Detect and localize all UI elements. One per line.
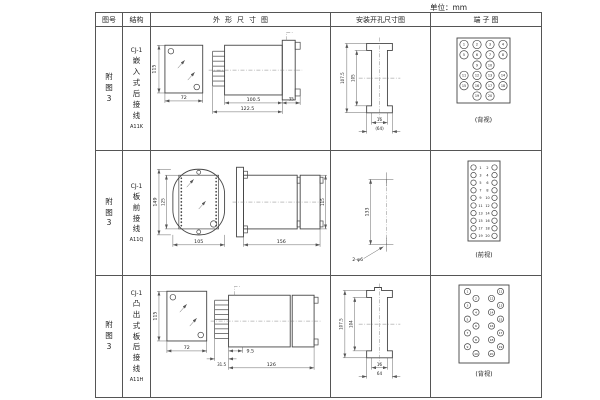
row3-figure-no: 附图3 [96, 276, 123, 397]
drawing-table: 图号 结构 外形尺寸图 安装开孔尺寸图 端子图 附图3 CJ-1 嵌入式后接线 … [95, 12, 542, 398]
row3-terminal-view-label: (背视) [475, 370, 492, 378]
row2-hole-callout: 2-φ6 [352, 257, 363, 263]
svg-text:4: 4 [475, 310, 477, 314]
row3-terminal-circles: 1112123134145156167178189191020 [464, 288, 503, 356]
row1-dim-width: 72 [181, 95, 187, 101]
row1-dim-mount-slot: 16 [377, 117, 383, 122]
svg-text:18: 18 [485, 226, 489, 230]
svg-text:15: 15 [478, 219, 482, 223]
header-mounting-dims: 安装开孔尺寸图 [331, 13, 431, 27]
svg-text:20: 20 [490, 352, 494, 356]
row2-front-view: 149 125 105 [152, 169, 224, 247]
row2-mounting-diagram: 133 2-φ6 [331, 151, 430, 276]
row2-structure: CJ-1 板前接线 A11Q [123, 151, 151, 276]
header-structure: 结构 [123, 13, 151, 27]
svg-text:3: 3 [467, 304, 469, 308]
svg-text:14: 14 [501, 73, 505, 77]
svg-text:9: 9 [467, 345, 469, 349]
row1-dim-mount-span: (64) [375, 126, 384, 131]
row1-terminal-view-label: (背视) [475, 116, 492, 124]
svg-text:3: 3 [489, 42, 491, 46]
svg-text:20: 20 [485, 234, 489, 238]
row1-structure-desc: 嵌入式后接线 [131, 56, 142, 121]
svg-text:2: 2 [476, 42, 478, 46]
svg-text:5: 5 [463, 53, 465, 57]
row3-dim-mount-outer: 107.5 [338, 318, 343, 330]
row1-dim-flange: 35 [289, 96, 295, 101]
svg-text:12: 12 [485, 203, 489, 207]
svg-text:19: 19 [478, 234, 482, 238]
svg-text:19: 19 [499, 345, 503, 349]
svg-text:1: 1 [463, 42, 465, 46]
svg-text:14: 14 [485, 211, 489, 215]
row3-structure-code: A11H [130, 377, 144, 383]
row2-dim-hole-spacing: 133 [365, 207, 371, 216]
svg-text:8: 8 [475, 338, 477, 342]
row2-structure-code: A11Q [130, 237, 144, 243]
row1-side-view: 100.5 35 122.5 [209, 32, 302, 114]
svg-text:16: 16 [475, 83, 479, 87]
svg-text:20: 20 [488, 94, 492, 98]
row1-mounting-diagram: 107.5 105 16 (64) [331, 27, 430, 151]
svg-text:7: 7 [479, 188, 481, 192]
row2-dim-height: 149 [152, 197, 158, 206]
row2-outline-diagram: 149 125 105 [151, 151, 330, 276]
row2-dim-width: 105 [194, 239, 203, 245]
row3-dim-pins-len: 31.5 [217, 362, 226, 367]
row2-side-view: 156 115 [233, 167, 327, 247]
row3-side-view: 9.5 31.5 126 [207, 286, 322, 370]
row2-structure-desc: 板前接线 [131, 192, 142, 236]
svg-text:2: 2 [486, 165, 488, 169]
svg-text:17: 17 [478, 226, 482, 230]
svg-text:8: 8 [502, 53, 504, 57]
row1-structure: CJ-1 嵌入式后接线 A11K [123, 27, 151, 151]
svg-text:11: 11 [478, 203, 482, 207]
svg-text:10: 10 [488, 63, 492, 67]
row1-outline-diagram: 115 72 [151, 27, 330, 151]
svg-text:5: 5 [467, 317, 469, 321]
row1-figure-label: 附图3 [104, 72, 115, 105]
row2-terminal-circles: 1234567891011121314151617181920 [471, 164, 497, 238]
row1-terminal-cell: 1234567891011121314151617181920 (背视) [431, 27, 541, 151]
row3-terminal-diagram: 1112123134145156167178189191020 (背视) [431, 276, 541, 397]
row1-dim-total-len: 122.5 [241, 106, 255, 112]
svg-text:9: 9 [479, 196, 481, 200]
row3-dim-width: 72 [184, 345, 190, 351]
row1-dim-height: 115 [151, 64, 157, 73]
row1-structure-code: A11K [130, 124, 143, 130]
header-outline-dims: 外形尺寸图 [151, 13, 331, 27]
row3-dim-height: 115 [152, 312, 158, 321]
svg-text:14: 14 [490, 310, 494, 314]
svg-text:17: 17 [499, 331, 503, 335]
svg-text:13: 13 [478, 211, 482, 215]
row2-outline-cell: 149 125 105 [151, 151, 331, 276]
row2-structure-model: CJ-1 [131, 183, 143, 190]
row1-terminal-diagram: 1234567891011121314151617181920 (背视) [431, 27, 541, 151]
svg-text:1: 1 [479, 165, 481, 169]
svg-text:10: 10 [474, 352, 478, 356]
svg-text:9: 9 [476, 63, 478, 67]
svg-text:18: 18 [490, 338, 494, 342]
row3-dim-length: 126 [267, 362, 276, 368]
row2-terminal-diagram: 1234567891011121314151617181920 (前视) [431, 151, 541, 276]
row3-structure: CJ-1 凸出式板后接线 A11H [123, 276, 151, 397]
row1-front-view: 115 72 [151, 45, 202, 103]
row3-dim-offset: 9.5 [246, 349, 254, 355]
row3-outline-diagram: 115 72 [151, 276, 330, 397]
svg-text:11: 11 [499, 290, 503, 294]
row3-structure-model: CJ-1 [131, 290, 143, 297]
document-page: 单位：mm 图号 结构 外形尺寸图 安装开孔尺寸图 端子图 附图3 CJ-1 嵌… [0, 0, 600, 400]
svg-text:5: 5 [479, 181, 481, 185]
svg-text:19: 19 [475, 94, 479, 98]
header-terminal-diagram: 端子图 [431, 13, 541, 27]
svg-text:4: 4 [486, 173, 488, 177]
svg-text:17: 17 [488, 83, 492, 87]
row2-figure-no: 附图3 [96, 151, 123, 276]
row3-mounting-cell: 107.5 104 16 64 [331, 276, 431, 397]
svg-text:16: 16 [490, 324, 494, 328]
svg-text:8: 8 [486, 188, 488, 192]
svg-text:15: 15 [499, 317, 503, 321]
svg-text:1: 1 [467, 290, 469, 294]
row1-mounting-cell: 107.5 105 16 (64) [331, 27, 431, 151]
svg-text:15: 15 [462, 83, 466, 87]
row3-dim-mount-inner: 104 [348, 320, 353, 328]
svg-text:7: 7 [489, 53, 491, 57]
row1-dim-body-len: 100.5 [247, 97, 261, 103]
row3-figure-label: 附图3 [104, 320, 115, 353]
row2-terminal-cell: 1234567891011121314151617181920 (前视) [431, 151, 541, 276]
row3-front-view: 115 72 [152, 291, 206, 353]
row2-mounting-cell: 133 2-φ6 [331, 151, 431, 276]
row3-terminal-cell: 1112123134145156167178189191020 (背视) [431, 276, 541, 397]
row3-structure-desc: 凸出式板后接线 [131, 299, 142, 375]
row3-dim-mount-slot: 16 [377, 362, 383, 367]
row1-figure-no: 附图3 [96, 27, 123, 151]
row3-outline-cell: 115 72 [151, 276, 331, 397]
svg-text:4: 4 [502, 42, 504, 46]
svg-text:13: 13 [499, 304, 503, 308]
svg-text:10: 10 [485, 196, 489, 200]
svg-text:13: 13 [488, 73, 492, 77]
row2-dim-inner-height: 125 [160, 197, 165, 205]
svg-text:18: 18 [501, 83, 505, 87]
row1-dim-mount-inner: 105 [350, 73, 355, 81]
row2-dim-side-height: 115 [320, 197, 325, 205]
row2-terminal-view-label: (前视) [475, 251, 492, 259]
row1-outline-cell: 115 72 [151, 27, 331, 151]
row1-dim-mount-outer: 107.5 [340, 71, 345, 83]
svg-text:3: 3 [479, 173, 481, 177]
svg-text:16: 16 [485, 219, 489, 223]
svg-text:7: 7 [467, 331, 469, 335]
svg-text:12: 12 [490, 297, 494, 301]
header-figure-no: 图号 [96, 13, 123, 27]
row2-figure-label: 附图3 [104, 197, 115, 230]
svg-text:12: 12 [475, 73, 479, 77]
row1-structure-model: CJ-1 [131, 47, 143, 54]
svg-text:6: 6 [486, 181, 488, 185]
svg-text:6: 6 [475, 324, 477, 328]
svg-text:2: 2 [475, 297, 477, 301]
row3-dim-mount-span: 64 [377, 371, 383, 376]
row2-dim-length: 156 [277, 239, 286, 245]
row3-mounting-diagram: 107.5 104 16 64 [331, 276, 430, 397]
svg-text:11: 11 [462, 73, 466, 77]
row1-terminal-circles: 1234567891011121314151617181920 [460, 40, 507, 100]
svg-text:6: 6 [476, 53, 478, 57]
